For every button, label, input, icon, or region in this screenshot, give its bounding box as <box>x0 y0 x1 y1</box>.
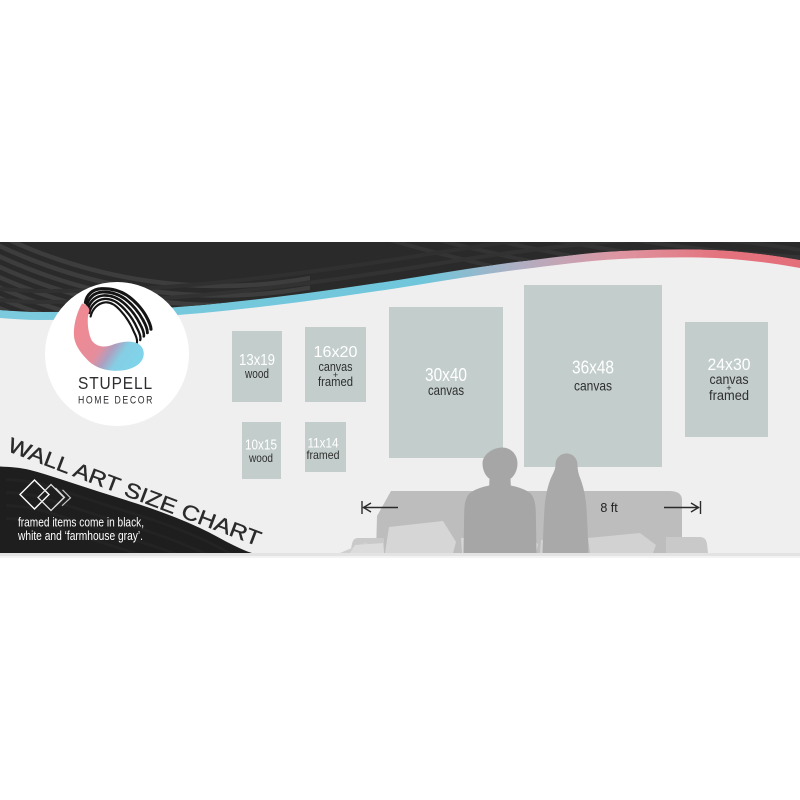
svg-text:wood: wood <box>244 367 269 381</box>
svg-text:8 ft: 8 ft <box>600 501 618 515</box>
svg-text:wood: wood <box>248 451 273 465</box>
svg-text:canvas: canvas <box>574 378 612 394</box>
svg-text:framed: framed <box>307 448 340 462</box>
svg-text:framed: framed <box>318 375 353 389</box>
svg-text:36x48: 36x48 <box>572 358 614 378</box>
svg-text:HOME DECOR: HOME DECOR <box>78 395 154 407</box>
svg-text:STUPELL: STUPELL <box>78 373 153 393</box>
svg-text:white and ‘farmhouse gray’.: white and ‘farmhouse gray’. <box>17 529 143 543</box>
svg-text:framed: framed <box>709 388 749 403</box>
svg-text:16x20: 16x20 <box>314 344 358 361</box>
svg-text:canvas: canvas <box>428 382 464 398</box>
svg-text:framed items come in black,: framed items come in black, <box>18 516 144 530</box>
